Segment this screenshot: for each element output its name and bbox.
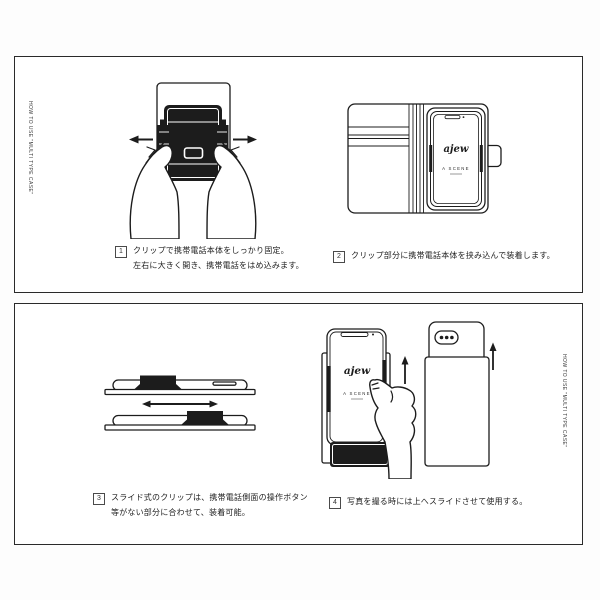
- back-view-slid-up: [425, 322, 497, 466]
- clip-bar-left: [429, 145, 432, 172]
- side-view-bottom: [105, 411, 255, 430]
- step-3-number: 3: [93, 493, 105, 505]
- clip-bar-left: [327, 366, 330, 412]
- front-view-slid-up: ajew A SCENE: [322, 329, 416, 479]
- phone-in-case: ajew A SCENE: [427, 108, 485, 210]
- arrow-up-icon: [490, 343, 497, 371]
- case-pocket: [330, 442, 390, 467]
- step-4-number: 4: [329, 497, 341, 509]
- vertical-label-top: HOW TO USE "MULTI TYPE CASE": [27, 101, 33, 195]
- vertical-label-bottom: HOW TO USE "MULTI TYPE CASE": [561, 354, 567, 448]
- right-hand: [207, 140, 256, 239]
- slide-arrow-icon: [142, 401, 218, 408]
- camera-lens-dot: [445, 336, 449, 340]
- bottom-panel: 3 スライド式のクリップは、携帯電話側面の操作ボタン 等がない部分に合わせて、装…: [14, 303, 583, 545]
- front-camera-dot: [372, 334, 374, 336]
- arrow-right-icon: [233, 136, 257, 144]
- slide-up-camera-illustration: ajew A SCENE: [309, 314, 509, 479]
- clip-bar-right: [480, 145, 483, 172]
- notch: [341, 333, 368, 337]
- brand-logo-text: ajew: [344, 365, 371, 377]
- side-button: [213, 382, 236, 385]
- step-2-caption: 2 クリップ部分に携帯電話本体を挟み込んで装着します。: [333, 249, 555, 264]
- left-hand: [130, 140, 179, 239]
- step-1-caption: 1 クリップで携帯電話本体をしっかり固定。 左右に大きく開き、携帯電話をはめ込み…: [115, 244, 304, 273]
- clip-position-left: [134, 376, 182, 390]
- step-3-line-1: スライド式のクリップは、携帯電話側面の操作ボタン: [111, 491, 308, 506]
- side-view-top: [105, 376, 255, 395]
- phone-back: [164, 105, 222, 181]
- arrow-left-icon: [129, 136, 153, 144]
- step-3-caption: 3 スライド式のクリップは、携帯電話側面の操作ボタン 等がない部分に合わせて、装…: [93, 491, 308, 520]
- step-2-line-1: クリップ部分に携帯電話本体を挟み込んで装着します。: [351, 249, 555, 264]
- open-folio-case-illustration: ajew A SCENE: [345, 95, 545, 235]
- front-camera-dot: [463, 116, 465, 118]
- step-3-line-2: 等がない部分に合わせて、装着可能。: [111, 506, 308, 521]
- top-panel: HOW TO USE "MULTI TYPE CASE": [14, 56, 583, 293]
- collection-text: A SCENE: [343, 391, 371, 396]
- clip-position-right: [181, 411, 229, 425]
- step-2-number: 2: [333, 251, 345, 263]
- collection-text: A SCENE: [442, 166, 470, 171]
- camera-lens-dot: [440, 336, 444, 340]
- step-4-caption: 4 写真を撮る時には上へスライドさせて使用する。: [329, 495, 527, 510]
- fine-print-line: [450, 174, 462, 175]
- hands-opening-clip-illustration: [115, 69, 295, 239]
- slide-clip-side-view-illustration: [90, 360, 270, 450]
- brand-logo-text: ajew: [443, 144, 468, 155]
- closure-tab: [488, 146, 501, 167]
- step-4-line-1: 写真を撮る時には上へスライドさせて使用する。: [347, 495, 527, 510]
- step-1-number: 1: [115, 246, 127, 258]
- notch: [445, 116, 460, 119]
- camera-lens-dot: [450, 336, 454, 340]
- arrow-up-icon: [402, 356, 409, 384]
- fine-print-line: [351, 399, 363, 400]
- step-1-line-1: クリップで携帯電話本体をしっかり固定。: [133, 244, 304, 259]
- step-1-line-2: 左右に大きく開き、携帯電話をはめ込みます。: [133, 259, 304, 274]
